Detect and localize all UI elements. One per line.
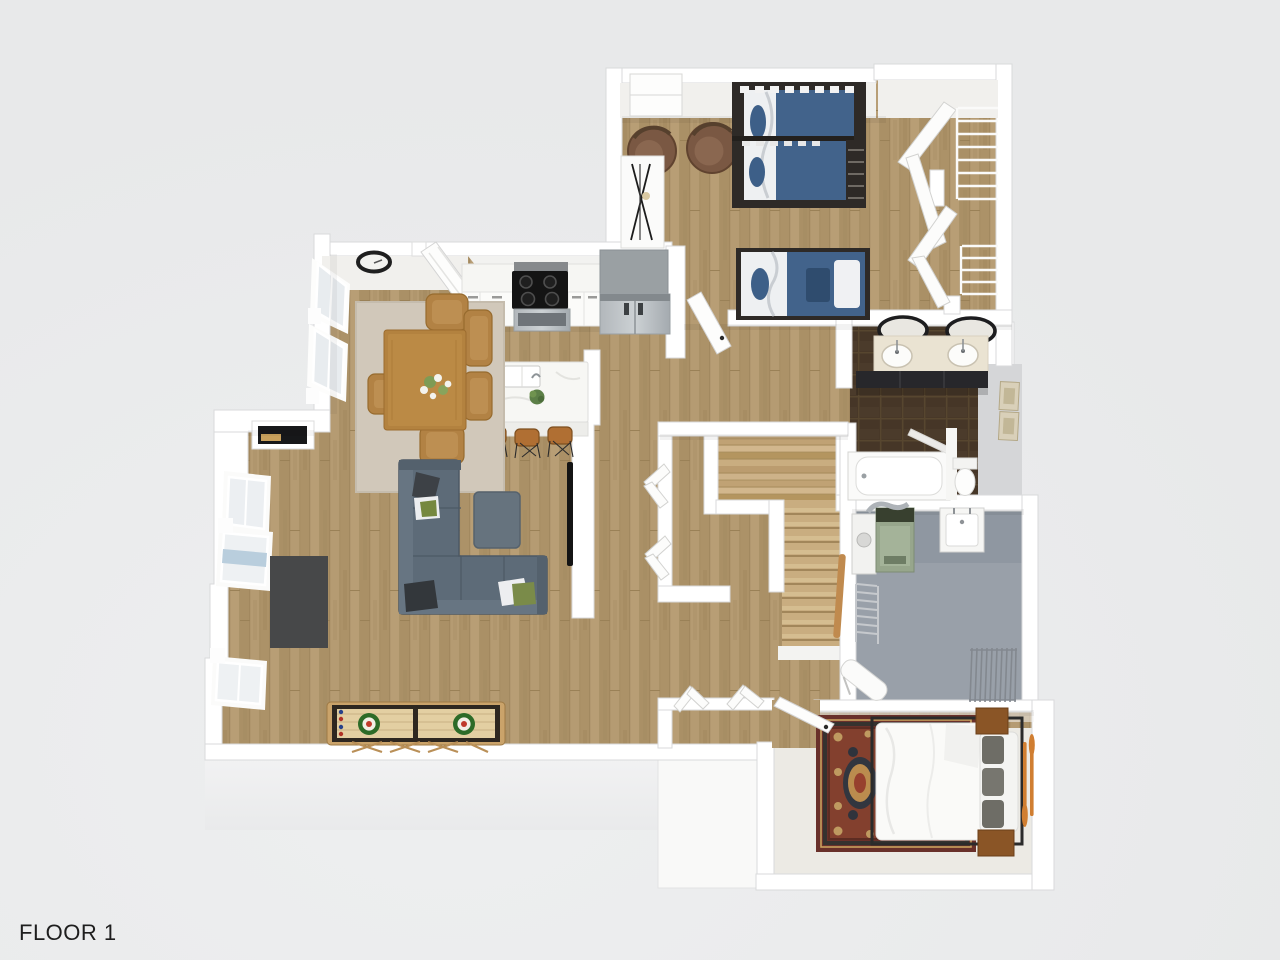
- svg-text:FLOOR 1: FLOOR 1: [19, 920, 117, 945]
